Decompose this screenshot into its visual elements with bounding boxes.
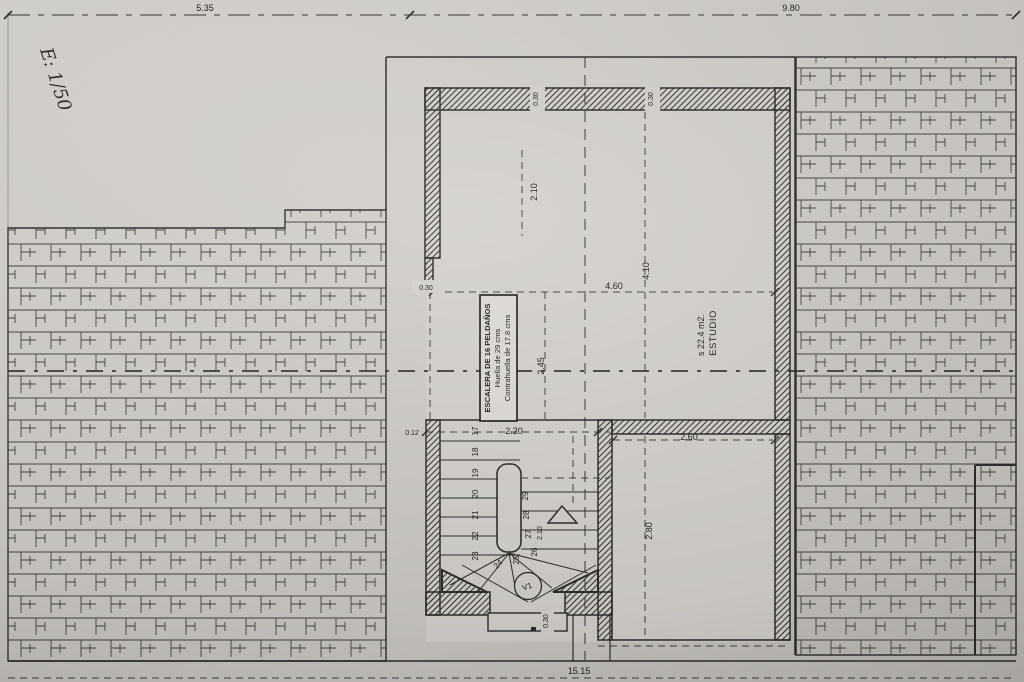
dim-top-wall-a: 0.30 <box>533 92 540 106</box>
top-wall <box>425 88 790 110</box>
step-number: 20 <box>471 489 480 498</box>
dim-door: 0.30 <box>543 614 550 628</box>
dim-lower-h: 2.80 <box>644 522 654 540</box>
dim-top-wall-b: 0.30 <box>648 92 655 106</box>
left-roof-hatch <box>8 210 386 661</box>
step-number: 22 <box>471 531 480 540</box>
room-area: s 22.4 m2. <box>696 314 706 356</box>
step-number: 26 <box>530 547 539 556</box>
step-number: 19 <box>471 468 480 477</box>
right-wall <box>775 88 790 420</box>
dim-span-left: 5.35 <box>196 3 214 13</box>
stair-left-wall <box>426 420 440 615</box>
dim-flight: 2.10 <box>537 526 544 540</box>
stair-note-line3: Contrahuella de 17.8 cms <box>503 315 512 402</box>
left-wall <box>425 88 440 258</box>
dim-span-right: 9.80 <box>782 3 800 13</box>
stair-note-line2: Huella de 29 cms <box>493 328 502 387</box>
step-number: 29 <box>521 491 530 500</box>
dim-lower-w: 2.60 <box>680 432 698 442</box>
dim-upper: 2.10 <box>529 183 539 201</box>
step-number: 23 <box>471 551 480 560</box>
stair-bottom-wall-left <box>426 592 490 615</box>
top-dimension-line <box>4 11 1020 19</box>
dim-studio-w: 4.60 <box>605 281 623 291</box>
studio-bottom-wall <box>612 420 790 434</box>
dim-studio-h: 4.10 <box>641 262 651 280</box>
dim-left-wall: 0.30 <box>419 285 433 292</box>
step-number: 25 <box>512 555 521 564</box>
step-number: 21 <box>471 510 480 519</box>
door-threshold <box>488 613 567 631</box>
threshold-mark <box>531 627 536 631</box>
dim-total: 15.15 <box>568 666 591 676</box>
step-number: 18 <box>471 447 480 456</box>
right-lower-wall <box>775 434 790 640</box>
scale-note: E: 1/50 <box>35 44 75 114</box>
stair-well <box>497 464 521 552</box>
dim-stair-h: 2.45 <box>536 357 546 375</box>
dim-stair-off: 0.12 <box>405 430 419 437</box>
room-name: ESTUDIO <box>708 310 719 356</box>
stair-bottom-wall-right <box>565 592 612 615</box>
floor-plan-drawing: E: 1/50 5.35 9.80 0.30 0.30 2.10 0.30 4.… <box>0 0 1024 682</box>
step-number: 28 <box>522 510 531 519</box>
right-roof-hatch <box>796 57 1016 655</box>
step-number: 27 <box>524 529 533 538</box>
stair-note-line1: ESCALERA DE 16 PELDAÑOS <box>483 303 492 412</box>
dim-stair-w: 2.20 <box>505 426 523 436</box>
step-number: 17 <box>471 426 480 435</box>
floor-plan-photo: E: 1/50 5.35 9.80 0.30 0.30 2.10 0.30 4.… <box>0 0 1024 682</box>
